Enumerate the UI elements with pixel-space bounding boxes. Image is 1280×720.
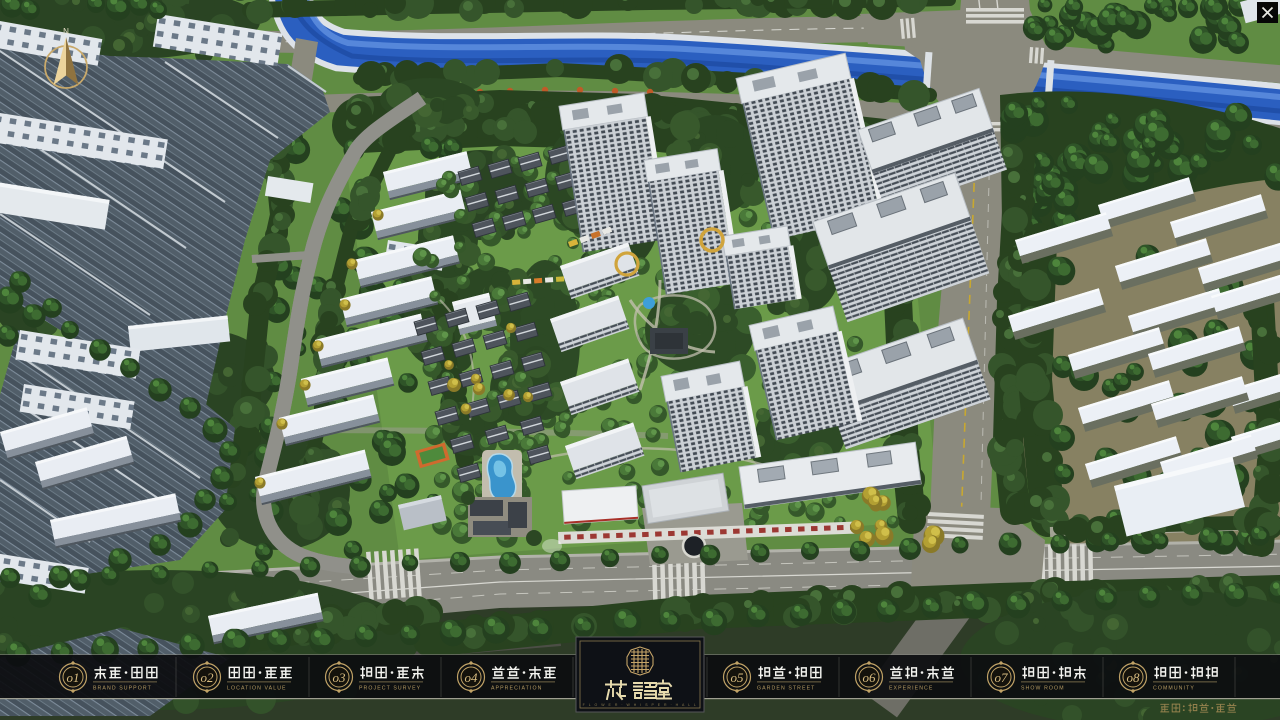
svg-text:GARDEN STREET: GARDEN STREET bbox=[757, 686, 815, 692]
svg-text:o4: o4 bbox=[465, 670, 479, 685]
svg-text:SHOW ROOM: SHOW ROOM bbox=[1021, 686, 1065, 692]
svg-text:COMMUNITY: COMMUNITY bbox=[1153, 686, 1195, 692]
svg-text:o5: o5 bbox=[731, 670, 745, 685]
svg-text:PROJECT SURVEY: PROJECT SURVEY bbox=[359, 686, 421, 692]
svg-text:o6: o6 bbox=[863, 670, 877, 685]
svg-text:BRAND SUPPORT: BRAND SUPPORT bbox=[93, 686, 152, 692]
svg-text:EXPERIENCE: EXPERIENCE bbox=[889, 686, 933, 692]
svg-text:N: N bbox=[63, 27, 69, 36]
svg-text:o8: o8 bbox=[1127, 670, 1141, 685]
svg-text:o1: o1 bbox=[67, 670, 80, 685]
svg-text:o2: o2 bbox=[201, 670, 215, 685]
svg-text:o7: o7 bbox=[995, 670, 1009, 685]
svg-text:APPRECIATION: APPRECIATION bbox=[491, 686, 542, 692]
svg-text:o3: o3 bbox=[333, 670, 347, 685]
svg-text:LOCATION VALUE: LOCATION VALUE bbox=[227, 686, 287, 692]
svg-text:F L O W E R · W H I S P E R ·: F L O W E R · W H I S P E R · H A L L bbox=[583, 703, 698, 707]
